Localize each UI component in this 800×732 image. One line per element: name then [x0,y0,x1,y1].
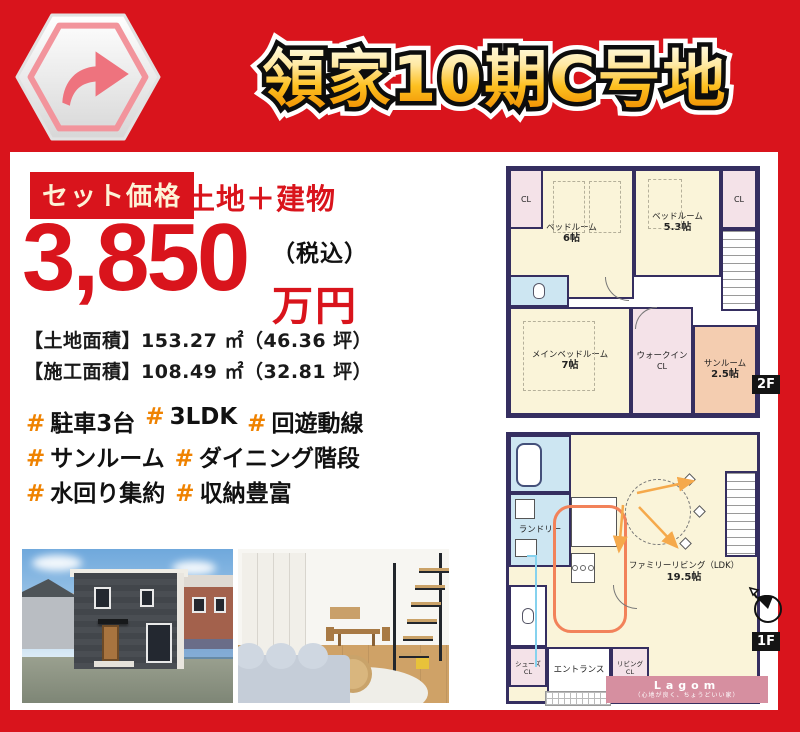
hashtag: #水回り集約 [26,474,165,508]
circulation-loop [553,505,627,633]
front-door [102,625,119,661]
room-toilet-1f [509,585,547,647]
exterior-photo [22,549,233,703]
room-main-bedroom: メインベッドルーム 7帖 [509,307,631,415]
hashtag: #サンルーム [26,439,165,473]
stairs-2f [721,229,757,311]
lagom-logo: Lagom （心地が良く、ちょうどいい家） [606,676,768,703]
room-bedroom-53: ベッドルーム 5.3帖 [634,169,721,277]
price-amount: 3,850 [22,208,247,309]
staircase [385,553,447,671]
ldk-label: ファミリーリビング（LDK） 19.5帖 [609,561,759,584]
hashtag-line-1: #駐車3台 #3LDK #回遊動線 [26,404,363,438]
floor-label-1f: 1F [752,632,780,651]
room-entrance: エントランス [547,647,611,693]
stairs-1f [725,471,757,557]
floorplan-2f: ベッドルーム 6帖 CL ベッドルーム 5.3帖 CL メインベッドルーム 7帖… [506,166,760,418]
tax-included-note: （税込） [272,234,402,268]
hashtag-line-2: #サンルーム #ダイニング階段 [26,439,360,473]
land-area-line: 【土地面積】153.27 ㎡（46.36 坪） [24,326,372,353]
room-shoes-closet: シューズ CL [509,647,547,687]
main-house [74,573,184,669]
north-compass-icon [746,583,786,631]
price-unit: 万円 [272,272,402,332]
building-area-line: 【施工面積】108.49 ㎡（32.81 坪） [24,357,372,384]
hashtag: #収納豊富 [175,474,291,508]
share-arrow-icon [12,6,164,148]
sofa [238,655,350,703]
floor-label-2f: 2F [752,375,780,394]
room-bath [509,435,571,493]
hashtag-line-3: #水回り集約 #収納豊富 [26,474,292,508]
room-closet-left: CL [509,169,543,229]
hashtag: #駐車3台 [26,404,135,438]
title-text: 領家10期C号地 [263,42,728,118]
hashtag: #回遊動線 [247,404,363,438]
floorplan-1f: ランドリー シューズ CL エントランス リビング CL ファミリーリビング（L… [506,432,760,704]
entrance-porch [545,691,611,706]
room-closet-right: CL [721,169,757,229]
room-sunroom: サンルーム 2.5帖 [693,325,757,415]
dining-table [625,479,691,545]
hashtag: #3LDK [145,404,237,438]
hashtag: #ダイニング階段 [175,439,360,473]
property-title: 領家10期C号地 領家10期C号地 領家10期C号地 [195,18,795,142]
interior-photo [238,549,449,703]
room-toilet-2f [509,275,569,307]
flyer-page: 領家10期C号地 領家10期C号地 領家10期C号地 セット価格 土地＋建物 3… [0,0,800,732]
